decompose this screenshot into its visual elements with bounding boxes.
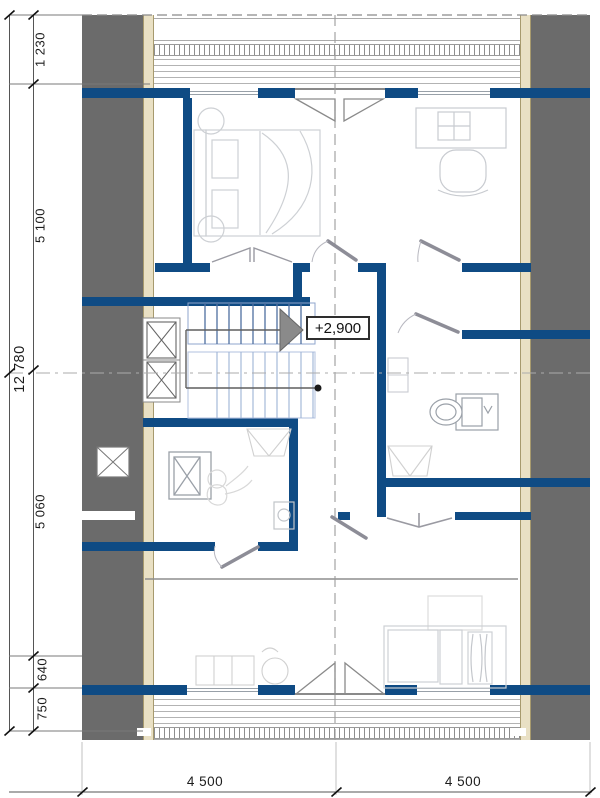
dim-label-1230: 1 230 <box>33 15 48 85</box>
desk-icon <box>416 108 506 148</box>
stair-lower-flight-outline <box>188 352 315 418</box>
stair-window-cross-icon <box>143 318 180 402</box>
bed2-icon <box>384 596 506 688</box>
wardrobe-icon <box>388 446 432 476</box>
office-chair-icon <box>438 150 488 196</box>
door-leaf <box>222 547 258 567</box>
door-leaf <box>416 314 458 332</box>
person-figure-icon <box>207 466 252 505</box>
bath-sink-icon <box>274 502 294 529</box>
dim-label-12780: 12 780 <box>12 334 28 404</box>
dim-label-4500-left: 4 500 <box>170 774 240 789</box>
duvet-curve <box>262 133 288 233</box>
french-door-swing-icon <box>296 99 383 121</box>
toilet-icon <box>430 394 498 430</box>
stair-direction-arrow-icon <box>280 309 303 351</box>
dim-label-4500-right: 4 500 <box>428 774 498 789</box>
floor-plan-canvas: 1 230 5 100 12 780 5 060 640 750 4 500 4… <box>0 0 600 798</box>
bed-icon <box>194 108 320 242</box>
ottoman-icon <box>262 658 288 684</box>
double-door-swing <box>212 248 292 262</box>
dimension-ticks <box>5 11 596 797</box>
dim-label-750: 750 <box>35 674 50 744</box>
pillow <box>388 630 438 682</box>
shower-icon <box>169 452 211 499</box>
door-leaf <box>328 241 356 260</box>
door-swing-arc <box>398 314 416 333</box>
door-swing-arc <box>312 241 328 262</box>
pillow <box>212 190 238 228</box>
door-leaf <box>421 241 459 260</box>
skylight-icon <box>97 447 129 477</box>
nightstand-icon <box>198 216 224 242</box>
headboard <box>194 130 206 236</box>
dimension-lines <box>5 11 596 797</box>
bath-wardrobe-icon <box>247 429 291 456</box>
bed-outline <box>206 130 320 236</box>
door-swing-arc <box>418 241 421 262</box>
wc-shelf-icon <box>388 358 408 392</box>
sketch-scribble <box>262 648 278 652</box>
plan-linework <box>0 0 600 798</box>
level-annotation-box: +2,900 <box>306 316 370 340</box>
dim-label-5100: 5 100 <box>33 191 48 261</box>
pillow <box>212 140 238 178</box>
reference-lines <box>9 15 590 740</box>
wardrobe2-icon <box>196 648 288 685</box>
double-door-swing <box>387 513 452 527</box>
dim-label-5060: 5 060 <box>33 477 48 547</box>
french-door-swing-icon <box>296 663 384 694</box>
bottom-extension-lines <box>82 742 590 795</box>
pillow <box>440 630 462 684</box>
door-leaf <box>332 517 366 538</box>
stair-treads-lower <box>217 352 313 418</box>
level-annotation-label: +2,900 <box>315 320 361 337</box>
staircase <box>186 303 322 418</box>
walkline-start-dot <box>315 385 322 392</box>
door-swing-arc <box>214 546 222 567</box>
